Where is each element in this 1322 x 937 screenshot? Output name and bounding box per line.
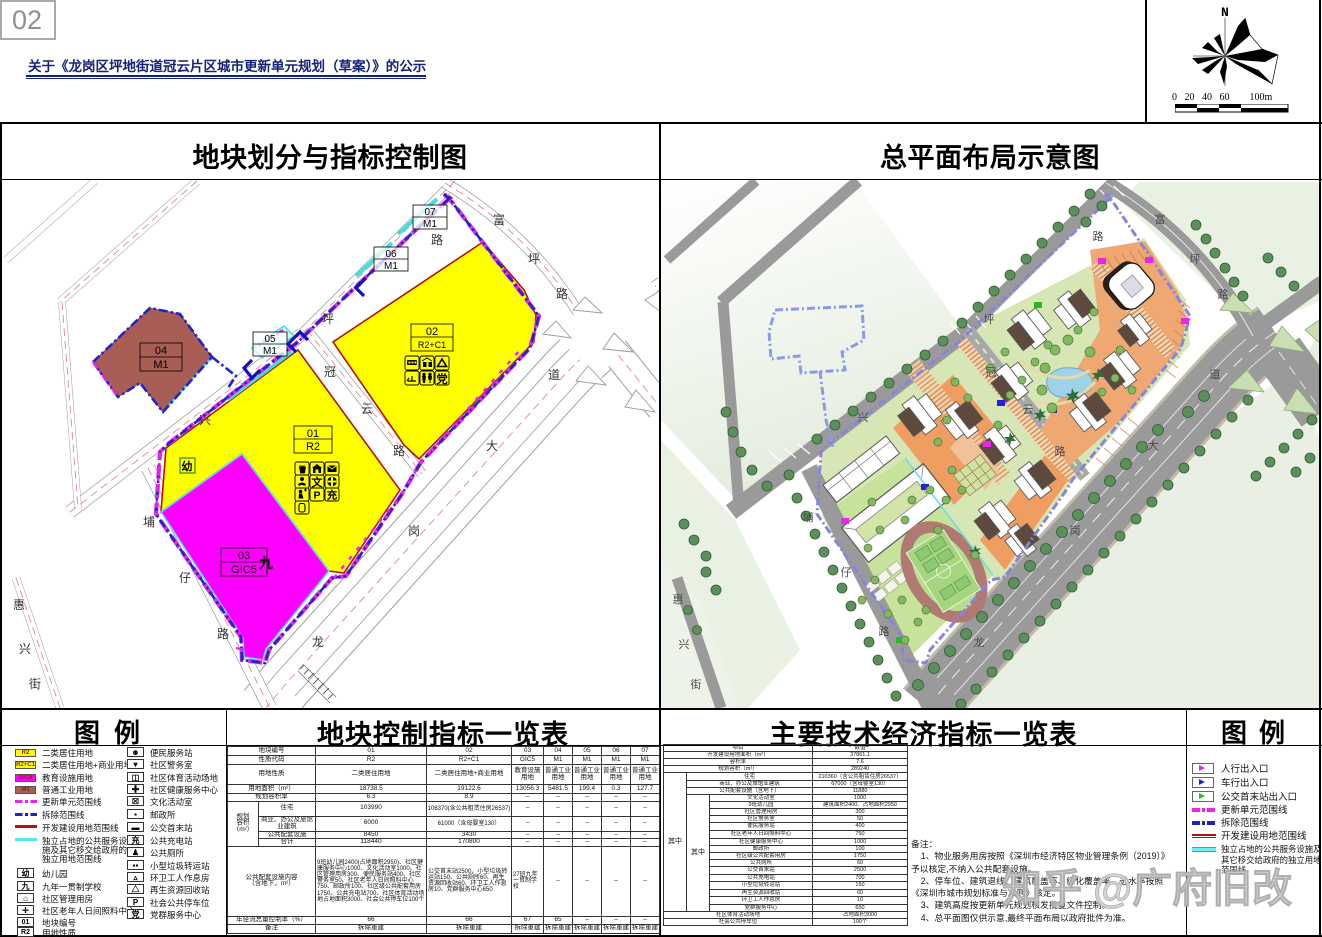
svg-text:冠: 冠 [324,365,336,379]
svg-text:坪: 坪 [984,313,995,326]
svg-text:仔: 仔 [179,571,191,585]
svg-text:九: 九 [258,555,273,571]
svg-text:充: 充 [327,489,338,502]
svg-text:云: 云 [1023,404,1034,416]
svg-text:路: 路 [1093,230,1104,243]
svg-text:M1: M1 [423,219,437,230]
svg-text:大: 大 [1148,438,1159,452]
svg-text:兴: 兴 [199,413,211,427]
svg-text:M1: M1 [263,346,277,357]
svg-text:N: N [1221,5,1229,20]
svg-text:坪: 坪 [528,252,540,266]
svg-text:惠: 惠 [13,598,25,612]
svg-text:道: 道 [548,368,560,382]
svg-text:P: P [313,490,320,502]
svg-text:R2: R2 [306,441,320,453]
svg-text:坪: 坪 [322,312,334,326]
svg-text:文: 文 [312,475,324,489]
svg-text:03: 03 [238,550,250,562]
svg-text:04: 04 [155,345,167,357]
svg-text:惠: 惠 [673,592,684,606]
svg-text:05: 05 [264,334,276,345]
svg-text:岗: 岗 [408,524,420,538]
svg-text:路: 路 [879,625,890,638]
svg-text:路: 路 [393,443,405,458]
svg-text:兴: 兴 [19,642,31,656]
svg-text:R2+C1: R2+C1 [418,340,446,350]
svg-text:02: 02 [426,326,438,338]
svg-text:埔: 埔 [803,511,814,524]
svg-text:岗: 岗 [1070,524,1081,537]
svg-text:埔: 埔 [143,515,155,529]
svg-text:GIC5: GIC5 [231,564,257,576]
svg-text:冠: 冠 [986,366,997,379]
svg-text:路: 路 [556,286,568,301]
svg-text:07: 07 [424,207,436,218]
svg-text:道: 道 [1210,367,1221,381]
svg-text:大: 大 [486,439,498,453]
svg-text:街: 街 [691,677,702,691]
svg-text:M1: M1 [384,261,398,272]
svg-text:坪: 坪 [1190,253,1201,266]
svg-text:01: 01 [307,428,319,440]
svg-text:幼: 幼 [182,459,193,473]
svg-text:兴: 兴 [679,638,690,651]
svg-text:街: 街 [29,677,41,691]
svg-text:兴: 兴 [858,411,869,424]
svg-text:云: 云 [361,402,373,416]
svg-text:路: 路 [1055,445,1066,458]
svg-text:路: 路 [431,232,443,247]
svg-text:党: 党 [436,372,448,386]
svg-text:路: 路 [217,626,229,641]
svg-text:龙: 龙 [312,635,324,649]
svg-text:路: 路 [1218,288,1229,301]
svg-text:06: 06 [385,249,397,260]
svg-text:龙: 龙 [974,636,985,649]
svg-text:仔: 仔 [841,566,852,579]
svg-text:M1: M1 [153,359,168,371]
svg-text:富: 富 [493,212,505,227]
svg-text:富: 富 [1155,212,1166,226]
